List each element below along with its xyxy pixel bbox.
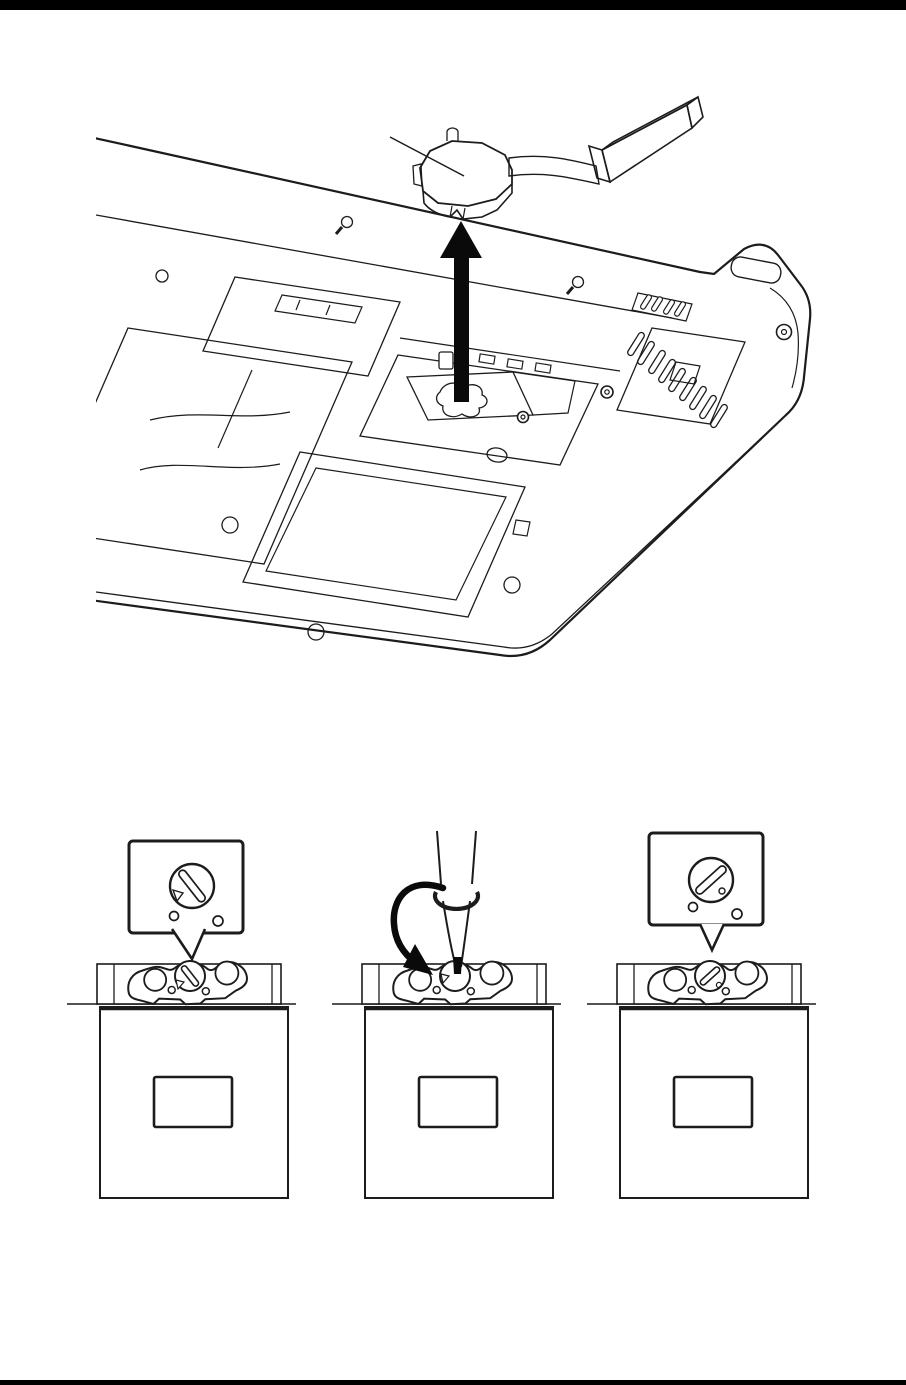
socket-center-pad — [674, 1077, 752, 1127]
manual-page — [0, 0, 906, 1385]
cooling-module — [390, 97, 703, 219]
screwdriver-tip — [453, 957, 462, 974]
socket-center-pad — [419, 1077, 497, 1127]
socket-figure-turn — [332, 831, 561, 1198]
socket-figure-lock — [587, 833, 816, 1198]
top-rule — [0, 0, 906, 10]
heat-pipe — [509, 156, 599, 184]
laptop-bottom-chassis — [40, 137, 810, 656]
socket-body — [100, 1007, 288, 1198]
cpu-screw — [601, 386, 613, 398]
contact-plate — [413, 128, 512, 219]
fin-block — [589, 97, 703, 182]
figure-cooling-module-removal — [40, 97, 810, 656]
screwdriver — [435, 831, 478, 974]
socket-figure-unlock — [67, 841, 296, 1198]
socket-body — [620, 1007, 808, 1198]
cpu-screw — [518, 412, 529, 423]
callout-tail — [700, 924, 724, 950]
callout-lock — [649, 833, 763, 950]
socket-body — [365, 1007, 553, 1198]
callout-unlock — [129, 841, 243, 959]
plate-nub — [447, 128, 458, 141]
screwdriver-collar — [435, 892, 478, 909]
leader-line — [390, 137, 464, 176]
socket-center-pad — [154, 1077, 232, 1127]
callout-tail — [172, 929, 205, 959]
bottom-rule — [0, 1380, 906, 1385]
